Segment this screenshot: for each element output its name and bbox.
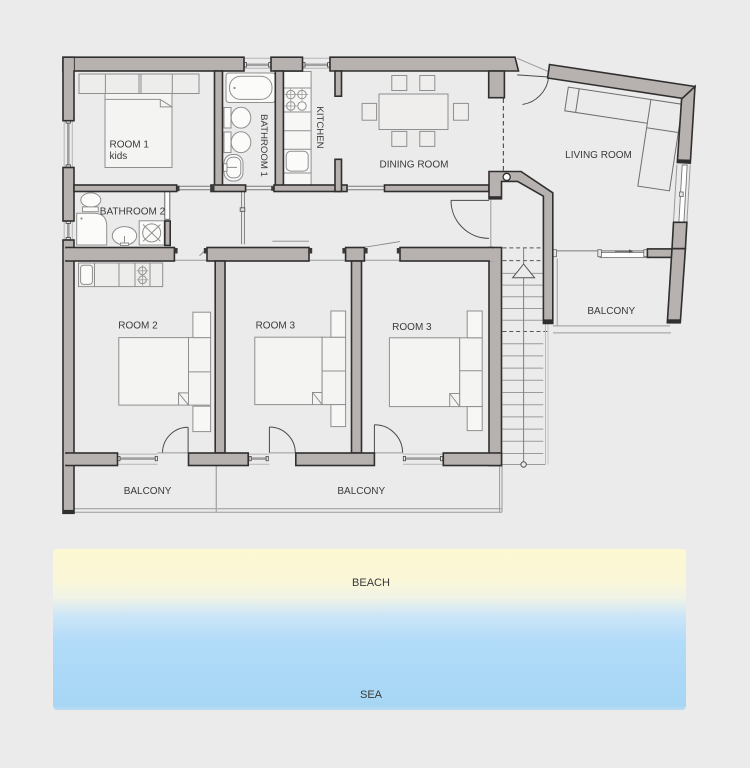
svg-text:kids: kids [110, 151, 128, 162]
svg-text:BALCONY: BALCONY [587, 306, 635, 317]
svg-text:BATHROOM 1: BATHROOM 1 [258, 114, 269, 177]
svg-text:BEACH: BEACH [352, 577, 390, 589]
svg-text:BALCONY: BALCONY [124, 486, 172, 497]
svg-text:BALCONY: BALCONY [337, 486, 385, 497]
svg-text:ROOM 2: ROOM 2 [118, 321, 158, 332]
svg-text:ROOM 3: ROOM 3 [256, 321, 296, 332]
svg-text:KITCHEN: KITCHEN [314, 106, 325, 148]
svg-text:BATHROOM 2: BATHROOM 2 [100, 207, 166, 218]
svg-text:ROOM 1: ROOM 1 [110, 140, 150, 151]
svg-text:SEA: SEA [360, 689, 383, 701]
svg-text:ROOM 3: ROOM 3 [392, 322, 432, 333]
svg-text:DINING ROOM: DINING ROOM [380, 160, 449, 171]
svg-text:LIVING ROOM: LIVING ROOM [565, 150, 632, 161]
